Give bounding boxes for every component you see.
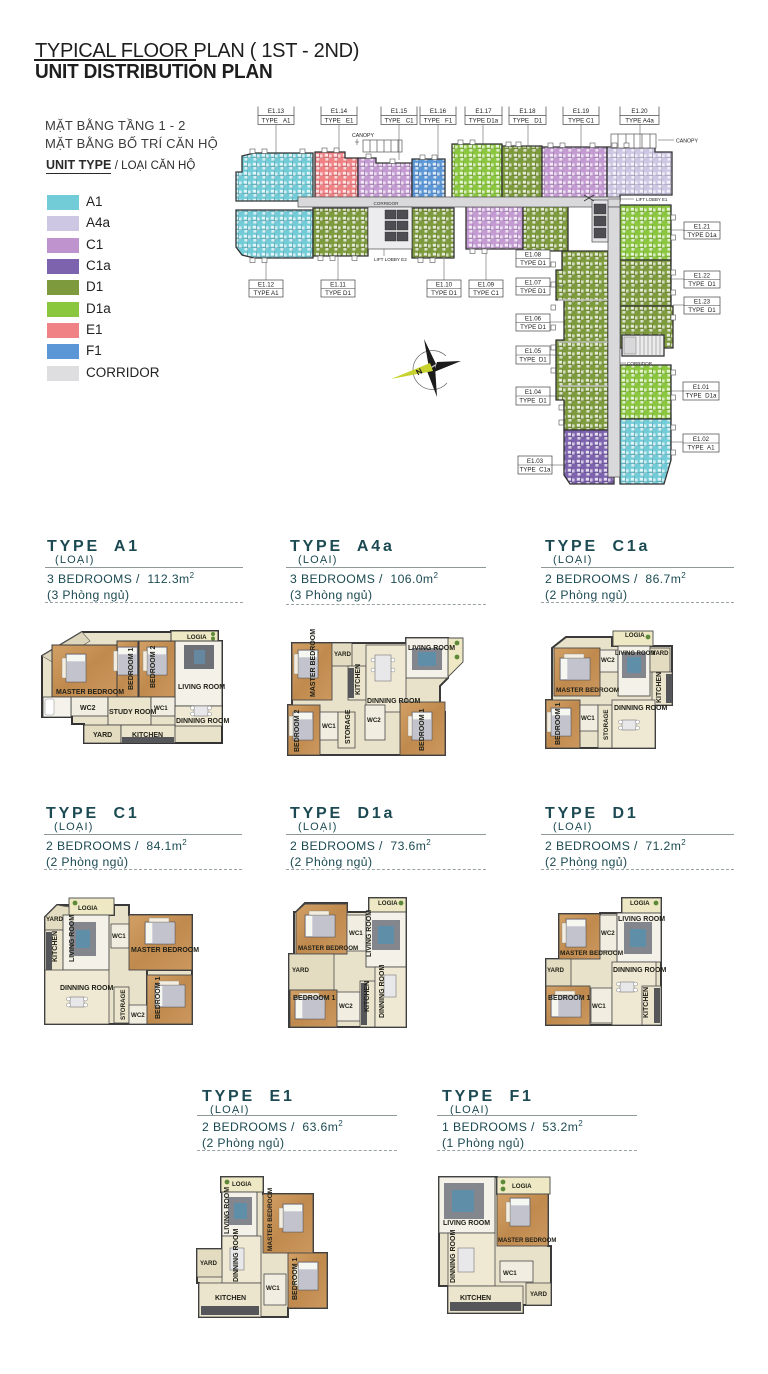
svg-text:DINNING ROOM: DINNING ROOM [613,967,666,974]
svg-text:TYPE D1a: TYPE D1a [687,232,717,239]
svg-text:TYPE C1: TYPE C1 [568,118,594,125]
svg-text:BEDROOM 1: BEDROOM 1 [293,995,336,1002]
svg-text:DINNING ROOM: DINNING ROOM [367,698,420,705]
svg-text:TYPE D1: TYPE D1 [431,290,457,297]
svg-text:KITCHEN: KITCHEN [132,732,163,739]
svg-text:TYPE E1: TYPE E1 [325,118,354,125]
svg-text:CANOPY: CANOPY [676,139,698,145]
svg-text:MASTER BEDROOM: MASTER BEDROOM [56,689,124,696]
svg-text:TYPE D1: TYPE D1 [688,307,716,314]
svg-text:WC1: WC1 [503,1270,517,1277]
svg-text:TYPE C1: TYPE C1 [384,118,414,125]
svg-text:LIVING ROOM: LIVING ROOM [408,645,455,652]
svg-text:E1.13: E1.13 [268,108,285,115]
svg-text:WC1: WC1 [349,930,363,937]
svg-text:DINNING ROOM: DINNING ROOM [379,965,386,1018]
svg-text:E1.06: E1.06 [525,316,542,323]
svg-text:E1.21: E1.21 [694,224,711,231]
svg-text:E1.10: E1.10 [436,282,453,289]
svg-text:TYPE D1: TYPE D1 [520,260,546,267]
svg-text:TYPE F1: TYPE F1 [424,118,453,125]
svg-text:TYPE D1: TYPE D1 [520,324,546,331]
svg-text:STORAGE: STORAGE [603,710,610,740]
svg-text:LIVING ROOM: LIVING ROOM [178,684,225,691]
svg-text:BEDROOM 1: BEDROOM 1 [155,977,162,1020]
svg-text:E1.07: E1.07 [525,280,542,287]
svg-text:E1.03: E1.03 [527,458,544,465]
svg-text:MASTER BEDROOM: MASTER BEDROOM [498,1238,556,1244]
svg-text:E1.01: E1.01 [693,384,710,391]
svg-text:WC1: WC1 [266,1285,280,1292]
svg-text:TYPE A1: TYPE A1 [687,445,715,452]
svg-text:TYPE D1: TYPE D1 [519,357,547,364]
svg-text:LIVING ROOM: LIVING ROOM [615,651,655,657]
svg-text:E1.20: E1.20 [631,108,648,115]
svg-text:TYPE D1a: TYPE D1a [686,393,718,400]
svg-text:KITCHEN: KITCHEN [643,987,650,1018]
svg-text:YARD: YARD [334,651,351,658]
svg-text:E1.04: E1.04 [525,389,542,396]
svg-text:E1.02: E1.02 [693,436,710,443]
svg-text:TYPE D1: TYPE D1 [520,288,546,295]
svg-text:MASTER BEDROOM: MASTER BEDROOM [310,629,317,697]
svg-text:WC2: WC2 [601,930,615,937]
svg-text:LIFT LOBBY E1: LIFT LOBBY E1 [636,197,668,202]
svg-text:LIVING ROOM: LIVING ROOM [618,916,665,923]
svg-text:TYPE D1: TYPE D1 [688,281,716,288]
svg-text:CORRIDOR: CORRIDOR [373,201,399,206]
svg-text:CORRIDOR: CORRIDOR [627,361,653,366]
svg-text:DINNING ROOM: DINNING ROOM [176,718,229,725]
svg-text:YARD: YARD [200,1260,217,1267]
svg-text:TYPE C1: TYPE C1 [473,290,499,297]
svg-text:E1.16: E1.16 [430,108,447,115]
svg-text:YARD: YARD [547,967,564,974]
svg-text:WC2: WC2 [80,705,96,712]
svg-text:YARD: YARD [652,651,669,657]
svg-text:E1.17: E1.17 [475,108,492,115]
svg-text:WC1: WC1 [581,715,595,722]
svg-text:E1.12: E1.12 [258,282,275,289]
svg-text:LOGIA: LOGIA [187,634,207,641]
svg-text:BEDROOM 1: BEDROOM 1 [548,995,591,1002]
svg-text:E1.23: E1.23 [694,299,711,306]
svg-text:YARD: YARD [292,967,309,974]
svg-text:LIVING ROOM: LIVING ROOM [443,1220,490,1227]
svg-text:KITCHEN: KITCHEN [656,672,663,703]
svg-text:YARD: YARD [530,1291,547,1298]
svg-text:MASTER BEDROOM: MASTER BEDROOM [267,1188,274,1251]
svg-text:KITCHEN: KITCHEN [364,981,371,1012]
svg-text:E1.08: E1.08 [525,252,542,259]
svg-text:WC2: WC2 [367,717,381,724]
svg-text:BEDROOM 1: BEDROOM 1 [292,1258,299,1301]
svg-text:E1.05: E1.05 [525,348,542,355]
svg-text:YARD: YARD [46,916,63,923]
svg-text:DINNING ROOM: DINNING ROOM [60,985,113,992]
svg-text:KITCHEN: KITCHEN [52,931,59,962]
svg-text:TYPE D1a: TYPE D1a [469,118,499,125]
svg-text:WC1: WC1 [592,1003,606,1010]
svg-text:MASTER BEDROOM: MASTER BEDROOM [131,947,199,954]
svg-text:E1.09: E1.09 [478,282,495,289]
svg-text:DINNING ROOM: DINNING ROOM [233,1229,240,1282]
svg-text:E1.18: E1.18 [519,108,536,115]
svg-text:LOGIA: LOGIA [78,905,98,912]
svg-text:BEDROOM 2: BEDROOM 2 [150,646,157,689]
svg-text:TYPE A4a: TYPE A4a [625,118,654,125]
svg-text:WC2: WC2 [131,1012,145,1019]
svg-text:LOGIA: LOGIA [630,900,650,907]
svg-text:BEDROOM 1: BEDROOM 1 [419,709,426,752]
svg-text:DINNING ROOM: DINNING ROOM [614,705,667,712]
svg-text:YARD: YARD [93,732,112,739]
svg-text:STORAGE: STORAGE [120,990,127,1020]
svg-text:KITCHEN: KITCHEN [355,664,362,695]
svg-text:KITCHEN: KITCHEN [460,1295,491,1302]
svg-text:STORAGE: STORAGE [345,709,352,744]
svg-text:TYPE D1: TYPE D1 [513,118,543,125]
svg-text:LOGIA: LOGIA [625,632,645,639]
svg-text:LIVING ROOM: LIVING ROOM [366,910,373,957]
svg-text:E1.19: E1.19 [573,108,590,115]
svg-text:BEDROOM 2: BEDROOM 2 [294,710,301,753]
svg-text:TYPE A1: TYPE A1 [262,118,291,125]
svg-text:E1.14: E1.14 [331,108,348,115]
svg-text:CANOPY: CANOPY [352,133,374,139]
svg-text:TYPE A1: TYPE A1 [253,290,279,297]
svg-text:LIVING ROOM: LIVING ROOM [224,1187,231,1234]
svg-text:LOGIA: LOGIA [512,1183,532,1190]
svg-text:LIVING ROOM: LIVING ROOM [69,915,76,962]
svg-text:STUDY ROOM: STUDY ROOM [109,709,156,716]
svg-text:TYPE D1: TYPE D1 [519,398,547,405]
svg-text:LOGIA: LOGIA [378,900,398,907]
svg-text:WC2: WC2 [601,657,615,664]
svg-text:BEDROOM 1: BEDROOM 1 [128,648,135,691]
svg-text:WC1: WC1 [112,933,126,940]
svg-text:KITCHEN: KITCHEN [215,1295,246,1302]
svg-text:WC1: WC1 [322,723,336,730]
svg-text:WC2: WC2 [339,1003,353,1010]
svg-text:BEDROOM 1: BEDROOM 1 [555,703,562,746]
svg-text:TYPE D1: TYPE D1 [325,290,351,297]
svg-text:TYPE C1a: TYPE C1a [520,467,552,474]
svg-text:E1.15: E1.15 [391,108,408,115]
svg-text:MASTER BEDROOM: MASTER BEDROOM [298,945,358,952]
svg-text:LIFT LOBBY E2: LIFT LOBBY E2 [374,257,407,262]
svg-text:LOGIA: LOGIA [232,1181,252,1188]
svg-text:MASTER BEDROOM: MASTER BEDROOM [556,687,619,694]
svg-text:E1.22: E1.22 [694,273,711,280]
svg-text:E1.11: E1.11 [330,282,346,289]
svg-text:DINNING ROOM: DINNING ROOM [450,1230,457,1283]
svg-text:MASTER BEDROOM: MASTER BEDROOM [560,950,623,957]
